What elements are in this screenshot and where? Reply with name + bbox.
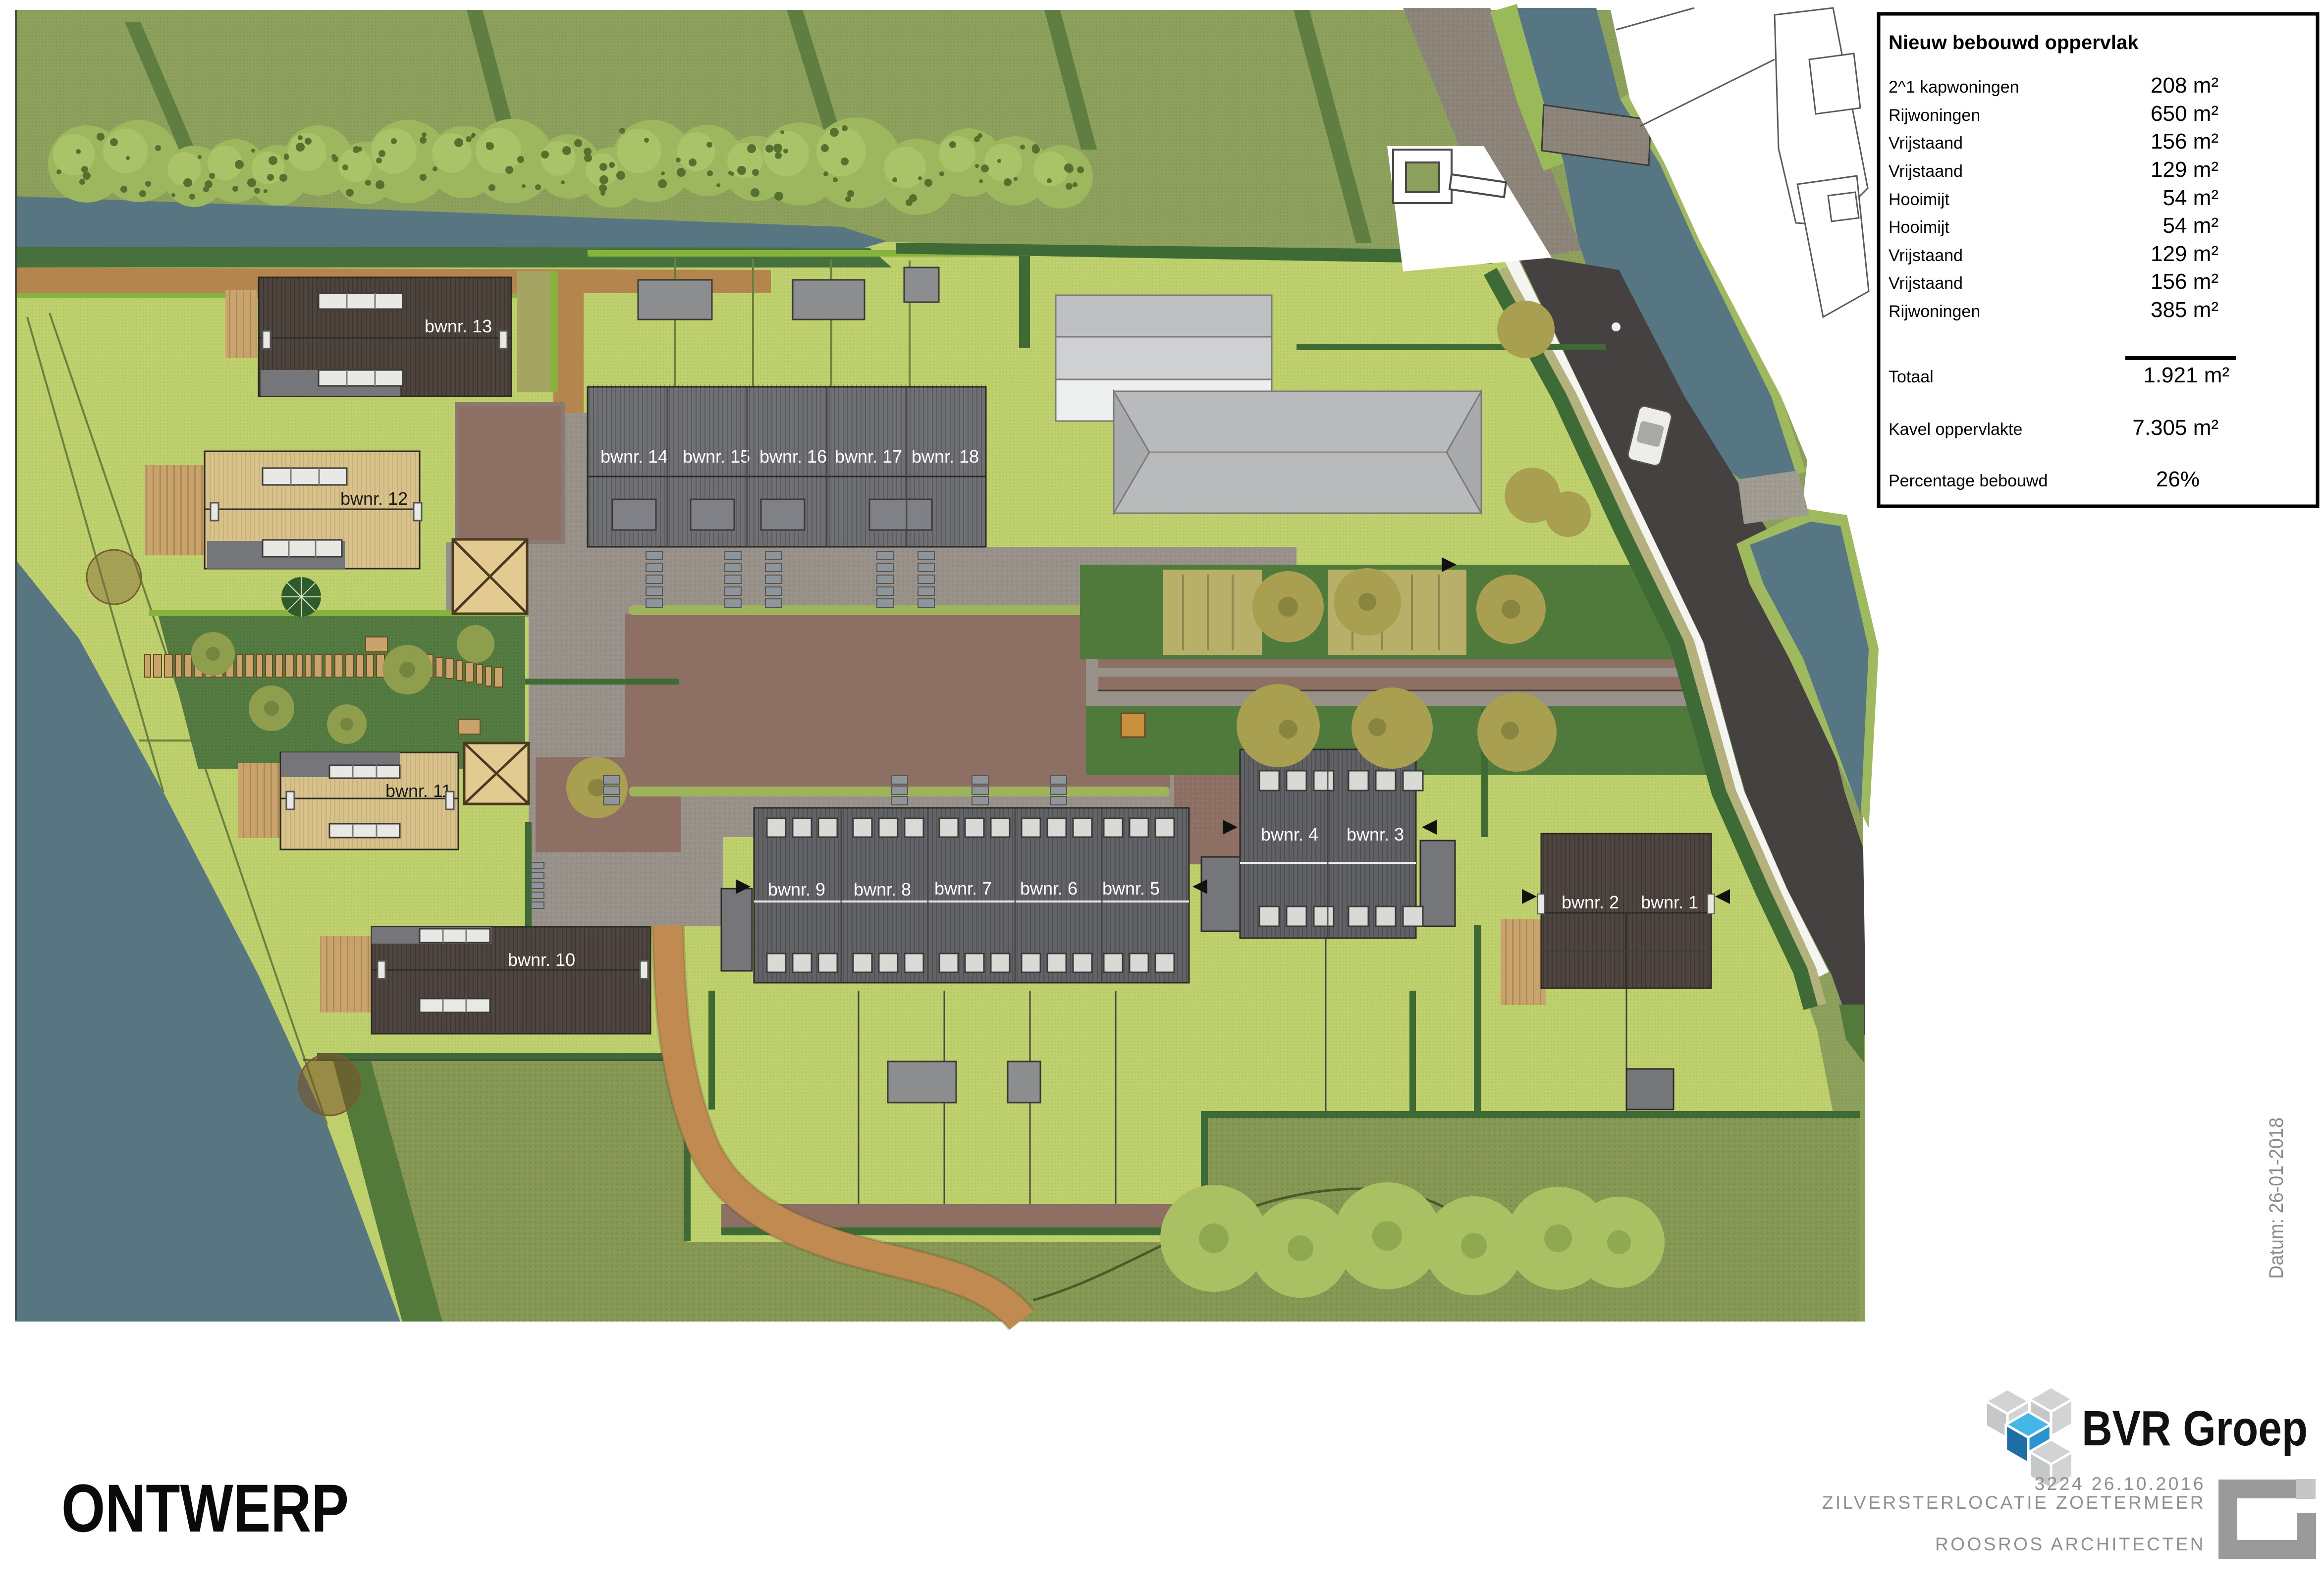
svg-text:Vrijstaand: Vrijstaand (1889, 274, 1963, 293)
svg-text:54 m²: 54 m² (2163, 213, 2218, 238)
svg-text:Vrijstaand: Vrijstaand (1889, 246, 1963, 265)
svg-text:Totaal: Totaal (1889, 368, 1934, 386)
svg-text:bwnr. 8: bwnr. 8 (854, 879, 911, 900)
svg-text:bwnr. 3: bwnr. 3 (1347, 824, 1404, 845)
svg-text:Rijwoningen: Rijwoningen (1889, 302, 1980, 321)
svg-text:385 m²: 385 m² (2151, 298, 2218, 322)
svg-text:156 m²: 156 m² (2151, 269, 2218, 294)
svg-text:54 m²: 54 m² (2163, 186, 2218, 210)
svg-text:bwnr. 18: bwnr. 18 (912, 446, 979, 467)
svg-text:3224 26.10.2016: 3224 26.10.2016 (2035, 1474, 2206, 1494)
svg-text:bwnr. 17: bwnr. 17 (835, 446, 902, 467)
svg-text:650 m²: 650 m² (2151, 102, 2218, 126)
svg-text:Hooimijt: Hooimijt (1889, 218, 1949, 237)
svg-text:bwnr. 10: bwnr. 10 (508, 950, 575, 970)
svg-text:129 m²: 129 m² (2151, 158, 2218, 182)
svg-text:7.305 m²: 7.305 m² (2132, 416, 2218, 440)
svg-text:Vrijstaand: Vrijstaand (1889, 134, 1963, 153)
svg-text:bwnr. 4: bwnr. 4 (1261, 824, 1318, 845)
svg-text:129 m²: 129 m² (2151, 242, 2218, 266)
svg-text:BVR Groep: BVR Groep (2082, 1401, 2308, 1456)
svg-text:26%: 26% (2156, 467, 2200, 491)
svg-text:bwnr. 14: bwnr. 14 (600, 446, 668, 467)
svg-text:Vrijstaand: Vrijstaand (1889, 162, 1963, 181)
svg-text:bwnr. 16: bwnr. 16 (759, 446, 827, 467)
svg-text:bwnr. 15: bwnr. 15 (683, 446, 750, 467)
svg-text:ONTWERP: ONTWERP (61, 1471, 349, 1546)
svg-text:bwnr. 2: bwnr. 2 (1562, 892, 1619, 912)
svg-text:bwnr. 13: bwnr. 13 (425, 316, 492, 336)
svg-text:bwnr. 9: bwnr. 9 (768, 879, 825, 900)
svg-text:Nieuw bebouwd oppervlak: Nieuw bebouwd oppervlak (1889, 32, 2139, 53)
svg-text:Percentage bebouwd: Percentage bebouwd (1889, 472, 2048, 490)
svg-text:Hooimijt: Hooimijt (1889, 190, 1949, 209)
svg-text:1.921 m²: 1.921 m² (2143, 363, 2229, 387)
svg-text:Rijwoningen: Rijwoningen (1889, 106, 1980, 125)
svg-text:ROOSROS ARCHITECTEN: ROOSROS ARCHITECTEN (1935, 1534, 2206, 1554)
svg-text:Datum: 26-01-2018: Datum: 26-01-2018 (2266, 1117, 2287, 1279)
svg-text:2^1 kapwoningen: 2^1 kapwoningen (1889, 78, 2019, 97)
svg-text:bwnr. 5: bwnr. 5 (1102, 878, 1160, 899)
svg-text:ZILVERSTERLOCATIE ZOETERMEER: ZILVERSTERLOCATIE ZOETERMEER (1822, 1492, 2206, 1513)
svg-text:bwnr. 11: bwnr. 11 (385, 781, 451, 801)
svg-text:156 m²: 156 m² (2151, 129, 2218, 154)
svg-text:bwnr. 7: bwnr. 7 (934, 878, 992, 899)
svg-text:208 m²: 208 m² (2151, 73, 2218, 98)
svg-text:bwnr. 6: bwnr. 6 (1020, 878, 1078, 899)
svg-text:bwnr. 1: bwnr. 1 (1641, 892, 1698, 912)
svg-text:bwnr. 12: bwnr. 12 (340, 488, 408, 509)
svg-text:Kavel oppervlakte: Kavel oppervlakte (1889, 420, 2022, 439)
